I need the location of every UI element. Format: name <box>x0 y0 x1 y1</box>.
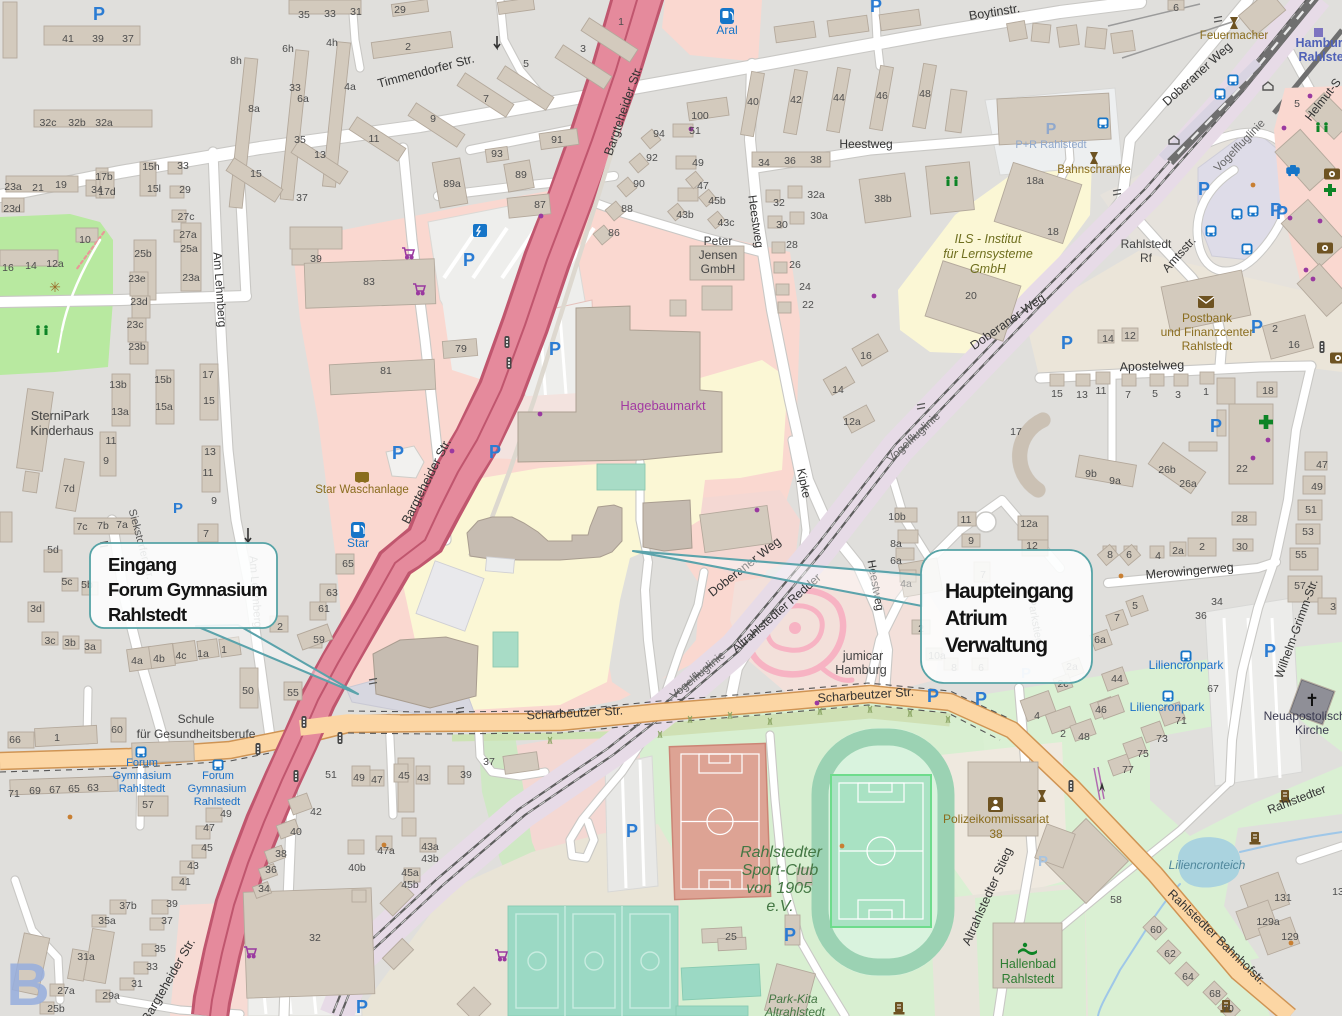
svg-text:Forum: Forum <box>126 757 158 769</box>
svg-text:Rahlstedt: Rahlstedt <box>119 783 165 795</box>
svg-text:Peter: Peter <box>704 234 733 248</box>
svg-text:38: 38 <box>989 827 1003 841</box>
svg-text:43a: 43a <box>421 841 439 853</box>
svg-text:34: 34 <box>1211 596 1223 608</box>
svg-text:19: 19 <box>55 179 67 191</box>
svg-text:37: 37 <box>296 192 308 204</box>
svg-text:2: 2 <box>1199 541 1205 553</box>
svg-text:83: 83 <box>363 276 375 288</box>
svg-text:42: 42 <box>790 94 802 106</box>
svg-text:2a: 2a <box>1172 545 1184 557</box>
svg-text:15h: 15h <box>142 161 160 173</box>
svg-text:Rahlstedt: Rahlstedt <box>194 796 240 808</box>
svg-text:61: 61 <box>318 603 330 615</box>
svg-text:Rf: Rf <box>1140 251 1153 265</box>
svg-text:64: 64 <box>1182 971 1194 983</box>
svg-text:33: 33 <box>177 160 189 172</box>
svg-text:26: 26 <box>789 259 801 271</box>
svg-text:23c: 23c <box>127 319 144 331</box>
svg-text:4h: 4h <box>326 37 338 49</box>
svg-text:131: 131 <box>1274 892 1292 904</box>
svg-text:Park-Kita: Park-Kita <box>768 992 818 1006</box>
svg-text:87: 87 <box>534 199 546 211</box>
svg-text:25: 25 <box>725 931 737 943</box>
svg-text:Polizeikommissariat: Polizeikommissariat <box>943 812 1050 826</box>
svg-text:25b: 25b <box>47 1003 65 1015</box>
svg-text:13a: 13a <box>111 406 129 418</box>
svg-text:7c: 7c <box>76 521 87 533</box>
svg-text:und Finanzcenter: und Finanzcenter <box>1161 325 1254 339</box>
svg-text:88: 88 <box>621 203 633 215</box>
svg-text:Kirche: Kirche <box>1295 723 1329 737</box>
svg-text:2: 2 <box>1060 728 1066 740</box>
svg-text:1: 1 <box>54 732 60 744</box>
svg-text:129: 129 <box>1281 931 1299 943</box>
svg-text:17: 17 <box>1010 426 1022 438</box>
svg-text:9b: 9b <box>1085 468 1097 480</box>
svg-text:129a: 129a <box>1256 916 1280 928</box>
svg-text:12: 12 <box>1124 330 1136 342</box>
svg-text:77: 77 <box>1122 764 1134 776</box>
svg-text:71: 71 <box>8 788 20 800</box>
svg-text:7b: 7b <box>97 520 109 532</box>
svg-text:66: 66 <box>9 734 21 746</box>
svg-text:6a: 6a <box>890 555 902 567</box>
svg-text:10: 10 <box>79 234 91 246</box>
svg-text:2: 2 <box>1272 323 1278 335</box>
svg-text:31a: 31a <box>77 951 95 963</box>
svg-text:3: 3 <box>1330 601 1336 613</box>
svg-text:6: 6 <box>1173 2 1179 14</box>
svg-text:Rahlstedt: Rahlstedt <box>1121 237 1172 251</box>
svg-text:67: 67 <box>1207 683 1219 695</box>
svg-text:3a: 3a <box>84 641 96 653</box>
svg-text:92: 92 <box>646 152 658 164</box>
svg-text:4c: 4c <box>175 650 186 662</box>
svg-text:60: 60 <box>1150 924 1162 936</box>
svg-text:89a: 89a <box>443 178 461 190</box>
svg-text:4a: 4a <box>131 655 143 667</box>
svg-text:36: 36 <box>784 155 796 167</box>
svg-text:47: 47 <box>697 180 709 192</box>
svg-text:Hamburg: Hamburg <box>835 663 886 677</box>
svg-text:33: 33 <box>324 8 336 20</box>
svg-text:28: 28 <box>786 239 798 251</box>
svg-text:7: 7 <box>203 528 209 540</box>
svg-text:32b: 32b <box>68 117 86 129</box>
svg-text:37: 37 <box>483 756 495 768</box>
svg-text:41: 41 <box>62 33 74 45</box>
svg-text:32a: 32a <box>95 117 113 129</box>
svg-text:✝: ✝ <box>1305 691 1319 710</box>
svg-text:Apostelweg: Apostelweg <box>1119 358 1184 374</box>
svg-text:Hagebaumarkt: Hagebaumarkt <box>620 398 706 413</box>
svg-text:P+R Rahlstedt: P+R Rahlstedt <box>1015 139 1086 151</box>
svg-text:6h: 6h <box>282 43 294 55</box>
svg-text:13: 13 <box>204 446 216 458</box>
svg-text:P: P <box>1061 333 1073 353</box>
svg-text:65: 65 <box>342 558 354 570</box>
svg-text:10b: 10b <box>888 511 906 523</box>
svg-text:47: 47 <box>1316 459 1328 471</box>
svg-text:93: 93 <box>491 148 503 160</box>
svg-text:35a: 35a <box>98 915 116 927</box>
svg-text:23e: 23e <box>128 273 146 285</box>
svg-text:39: 39 <box>92 33 104 45</box>
svg-text:27a: 27a <box>57 985 75 997</box>
svg-text:5c: 5c <box>61 576 72 588</box>
svg-text:4: 4 <box>1034 710 1040 722</box>
svg-text:36: 36 <box>1195 610 1207 622</box>
svg-text:✳: ✳ <box>49 279 61 295</box>
svg-text:69: 69 <box>29 785 41 797</box>
svg-text:94: 94 <box>653 128 665 140</box>
svg-text:Postbank: Postbank <box>1182 311 1233 325</box>
svg-text:53: 53 <box>1302 526 1314 538</box>
svg-text:38: 38 <box>810 154 822 166</box>
svg-text:Rahlstedter: Rahlstedter <box>740 844 822 861</box>
svg-text:32c: 32c <box>40 117 57 129</box>
svg-text:Gymnasium: Gymnasium <box>113 770 172 782</box>
svg-text:6a: 6a <box>297 93 309 105</box>
svg-text:1: 1 <box>618 16 624 28</box>
svg-text:91: 91 <box>551 134 563 146</box>
svg-text:13: 13 <box>314 149 326 161</box>
svg-text:11: 11 <box>961 514 972 526</box>
svg-text:79: 79 <box>455 343 467 355</box>
svg-text:e.V.: e.V. <box>766 898 793 915</box>
svg-text:26a: 26a <box>1179 478 1197 490</box>
svg-text:7: 7 <box>483 93 489 105</box>
svg-text:P: P <box>549 339 561 359</box>
svg-text:Jensen: Jensen <box>699 248 738 262</box>
svg-text:29: 29 <box>394 4 406 16</box>
svg-text:7: 7 <box>1125 389 1131 401</box>
svg-text:P: P <box>463 250 475 270</box>
svg-text:1: 1 <box>1203 386 1209 398</box>
svg-text:26b: 26b <box>1158 464 1176 476</box>
svg-text:Liliencronpark: Liliencronpark <box>1149 658 1225 672</box>
svg-text:14: 14 <box>832 384 844 396</box>
svg-text:11: 11 <box>106 435 117 447</box>
svg-text:23a: 23a <box>4 181 22 193</box>
svg-text:18a: 18a <box>1026 175 1044 187</box>
svg-text:für Lernsysteme: für Lernsysteme <box>943 247 1033 261</box>
svg-text:Eingang: Eingang <box>108 554 177 575</box>
svg-text:P: P <box>489 442 501 462</box>
svg-text:6: 6 <box>1126 549 1132 561</box>
svg-text:Verwaltung: Verwaltung <box>945 634 1047 657</box>
svg-text:18: 18 <box>1047 226 1059 238</box>
svg-text:45: 45 <box>398 770 410 782</box>
svg-text:4a: 4a <box>344 81 356 93</box>
svg-text:5d: 5d <box>47 544 59 556</box>
svg-text:49: 49 <box>1311 481 1323 493</box>
svg-text:15: 15 <box>1051 388 1063 400</box>
svg-text:Neuapostolische: Neuapostolische <box>1264 709 1342 723</box>
svg-text:16: 16 <box>1288 339 1300 351</box>
svg-text:27a: 27a <box>179 229 197 241</box>
svg-text:29: 29 <box>179 184 191 196</box>
svg-text:jumicar: jumicar <box>842 649 883 663</box>
svg-text:86: 86 <box>608 227 620 239</box>
svg-text:von 1905: von 1905 <box>746 880 812 897</box>
svg-text:Bahnschranke: Bahnschranke <box>1057 164 1131 176</box>
svg-text:2: 2 <box>405 41 411 53</box>
svg-text:P: P <box>1046 121 1057 138</box>
svg-text:22: 22 <box>802 299 814 311</box>
svg-text:23a: 23a <box>182 272 200 284</box>
svg-text:Sport-Club: Sport-Club <box>742 862 819 879</box>
svg-text:63: 63 <box>87 782 99 794</box>
svg-text:35: 35 <box>294 134 306 146</box>
svg-text:70: 70 <box>1222 1003 1234 1015</box>
svg-text:32a: 32a <box>807 189 825 201</box>
svg-text:3d: 3d <box>30 603 42 615</box>
svg-text:Altrahlstedt: Altrahlstedt <box>764 1005 826 1016</box>
svg-text:39: 39 <box>166 898 178 910</box>
svg-text:Liliencronpark: Liliencronpark <box>1130 700 1206 714</box>
svg-text:16: 16 <box>2 262 14 274</box>
svg-text:Liliencronteich: Liliencronteich <box>1169 858 1246 872</box>
svg-text:37: 37 <box>122 33 134 45</box>
svg-text:39: 39 <box>310 253 322 265</box>
svg-text:23d: 23d <box>3 203 21 215</box>
svg-text:39: 39 <box>460 769 472 781</box>
svg-text:5: 5 <box>1132 600 1138 612</box>
svg-text:8a: 8a <box>248 103 260 115</box>
svg-text:44: 44 <box>1111 673 1123 685</box>
svg-text:23d: 23d <box>130 296 148 308</box>
svg-text:15l: 15l <box>147 183 161 195</box>
svg-text:57: 57 <box>1294 580 1306 592</box>
svg-text:11: 11 <box>369 133 380 145</box>
svg-text:49: 49 <box>353 772 365 784</box>
svg-text:14: 14 <box>25 260 37 272</box>
svg-text:Hamburg-: Hamburg- <box>1295 36 1342 50</box>
svg-text:P: P <box>1210 416 1222 436</box>
svg-text:67: 67 <box>49 784 61 796</box>
svg-text:Rahlstedt: Rahlstedt <box>1299 50 1342 64</box>
svg-text:35: 35 <box>154 943 166 955</box>
svg-text:47: 47 <box>371 774 383 786</box>
svg-text:15a: 15a <box>155 401 173 413</box>
svg-text:28: 28 <box>1236 513 1248 525</box>
svg-text:38: 38 <box>275 848 287 860</box>
svg-text:45a: 45a <box>401 867 419 879</box>
svg-text:44: 44 <box>833 92 845 104</box>
svg-text:14: 14 <box>1102 333 1114 345</box>
svg-text:Gymnasium: Gymnasium <box>188 783 247 795</box>
svg-text:48: 48 <box>1078 731 1090 743</box>
svg-text:13b: 13b <box>109 379 127 391</box>
svg-text:33: 33 <box>146 961 158 973</box>
svg-text:P: P <box>1264 641 1276 661</box>
svg-text:17: 17 <box>202 369 214 381</box>
svg-text:Atrium: Atrium <box>945 607 1007 630</box>
svg-text:32: 32 <box>309 932 321 944</box>
svg-text:22: 22 <box>1236 463 1248 475</box>
svg-text:P: P <box>626 821 638 841</box>
svg-text:7d: 7d <box>63 483 75 495</box>
svg-text:12a: 12a <box>1020 518 1038 530</box>
svg-text:30: 30 <box>1236 541 1248 553</box>
svg-text:8h: 8h <box>230 55 242 67</box>
svg-text:34: 34 <box>258 883 270 895</box>
svg-text:Rahlstedt: Rahlstedt <box>108 604 187 625</box>
svg-text:63: 63 <box>326 587 338 599</box>
svg-text:Rahlstedt: Rahlstedt <box>1182 339 1233 353</box>
svg-text:9: 9 <box>103 455 109 467</box>
svg-text:P: P <box>1038 853 1048 870</box>
svg-text:B: B <box>6 951 49 1016</box>
svg-text:5: 5 <box>1294 98 1300 110</box>
svg-text:4b: 4b <box>153 653 165 665</box>
svg-text:Feuermacher: Feuermacher <box>1200 30 1269 42</box>
svg-text:38b: 38b <box>874 193 892 205</box>
svg-text:30: 30 <box>776 219 788 231</box>
svg-text:43: 43 <box>417 772 429 784</box>
svg-text:8a: 8a <box>890 538 902 550</box>
svg-text:15b: 15b <box>154 374 172 386</box>
svg-text:47: 47 <box>203 822 215 834</box>
svg-text:Star: Star <box>347 536 369 550</box>
svg-text:81: 81 <box>380 365 392 377</box>
svg-text:51: 51 <box>325 769 337 781</box>
svg-text:73: 73 <box>1156 733 1168 745</box>
svg-text:6a: 6a <box>1094 634 1106 646</box>
svg-text:17b: 17b <box>95 171 113 183</box>
svg-text:13: 13 <box>1332 886 1342 898</box>
svg-text:40: 40 <box>290 826 302 838</box>
svg-text:7: 7 <box>1114 612 1120 624</box>
svg-text:15: 15 <box>203 395 215 407</box>
svg-text:5: 5 <box>523 58 529 70</box>
svg-text:P: P <box>1276 203 1288 223</box>
svg-text:55: 55 <box>287 687 299 699</box>
svg-text:51: 51 <box>1305 504 1317 516</box>
svg-text:P: P <box>1198 179 1210 199</box>
svg-text:SterniPark: SterniPark <box>31 409 90 423</box>
svg-text:57: 57 <box>142 799 154 811</box>
svg-text:4: 4 <box>1155 550 1161 562</box>
svg-text:55: 55 <box>1295 549 1307 561</box>
svg-text:3: 3 <box>580 43 586 55</box>
svg-text:21: 21 <box>32 182 44 194</box>
svg-text:15: 15 <box>250 168 262 180</box>
svg-text:20: 20 <box>965 290 977 302</box>
svg-text:31: 31 <box>131 978 143 990</box>
svg-text:71: 71 <box>1175 715 1187 727</box>
svg-text:P: P <box>870 0 882 16</box>
svg-text:13: 13 <box>1076 389 1088 401</box>
svg-text:GmbH: GmbH <box>701 262 736 276</box>
svg-text:58: 58 <box>1110 894 1122 906</box>
svg-text:27c: 27c <box>178 211 195 223</box>
svg-text:68: 68 <box>1209 988 1221 1000</box>
svg-text:P: P <box>173 500 183 517</box>
svg-text:35: 35 <box>298 9 310 21</box>
svg-text:50: 50 <box>242 685 254 697</box>
svg-text:P: P <box>356 997 368 1016</box>
svg-text:Forum: Forum <box>202 770 234 782</box>
svg-text:89: 89 <box>515 169 527 181</box>
svg-text:P: P <box>392 443 404 463</box>
svg-text:Aral: Aral <box>716 23 737 37</box>
svg-text:25b: 25b <box>134 248 152 260</box>
svg-text:11: 11 <box>203 467 214 479</box>
svg-text:37b: 37b <box>119 900 137 912</box>
svg-text:25a: 25a <box>180 243 198 255</box>
svg-text:P: P <box>784 925 796 945</box>
svg-text:18: 18 <box>1262 385 1274 397</box>
svg-text:37: 37 <box>161 915 173 927</box>
svg-text:P: P <box>93 4 105 24</box>
svg-text:40: 40 <box>747 96 759 108</box>
svg-text:17d: 17d <box>98 186 116 198</box>
svg-text:41: 41 <box>179 876 191 888</box>
svg-text:Heestweg: Heestweg <box>839 137 892 151</box>
svg-text:46: 46 <box>1095 704 1107 716</box>
svg-text:Hallenbad: Hallenbad <box>1000 957 1056 971</box>
svg-text:62: 62 <box>1164 948 1176 960</box>
svg-text:1: 1 <box>221 644 227 656</box>
svg-text:60: 60 <box>111 724 123 736</box>
svg-text:46: 46 <box>876 90 888 102</box>
svg-text:23b: 23b <box>128 341 146 353</box>
svg-text:49: 49 <box>692 157 704 169</box>
svg-text:40b: 40b <box>348 862 366 874</box>
svg-text:36: 36 <box>265 864 277 876</box>
svg-text:90: 90 <box>633 178 645 190</box>
svg-text:Rahlstedt: Rahlstedt <box>1002 972 1055 986</box>
svg-text:P: P <box>927 686 939 706</box>
svg-text:11: 11 <box>1096 385 1107 397</box>
svg-text:Schule: Schule <box>178 712 215 726</box>
svg-text:Haupteingang: Haupteingang <box>945 580 1073 603</box>
svg-text:1a: 1a <box>197 648 209 660</box>
svg-text:24: 24 <box>799 281 811 293</box>
svg-text:43b: 43b <box>676 209 694 221</box>
svg-text:3c: 3c <box>44 635 55 647</box>
svg-text:65: 65 <box>68 783 80 795</box>
svg-text:9: 9 <box>211 495 217 507</box>
svg-text:45b: 45b <box>401 879 419 891</box>
svg-text:Star Waschanlage: Star Waschanlage <box>315 484 409 496</box>
svg-text:32: 32 <box>773 197 785 209</box>
svg-text:47a: 47a <box>377 845 395 857</box>
svg-text:16: 16 <box>860 350 872 362</box>
svg-text:34: 34 <box>758 157 770 169</box>
svg-text:48: 48 <box>919 88 931 100</box>
svg-text:ILS - Institut: ILS - Institut <box>955 232 1022 246</box>
svg-text:8: 8 <box>1107 549 1113 561</box>
svg-text:42: 42 <box>310 806 322 818</box>
svg-text:9: 9 <box>968 535 974 547</box>
svg-text:29a: 29a <box>102 990 120 1002</box>
svg-text:Forum Gymnasium: Forum Gymnasium <box>108 579 267 600</box>
svg-text:5: 5 <box>1152 388 1158 400</box>
svg-text:7a: 7a <box>116 519 128 531</box>
svg-text:59: 59 <box>313 634 325 646</box>
svg-text:45b: 45b <box>708 195 726 207</box>
svg-text:2: 2 <box>277 621 283 633</box>
svg-text:43: 43 <box>187 860 199 872</box>
svg-text:9: 9 <box>430 113 436 125</box>
svg-text:12a: 12a <box>46 258 64 270</box>
svg-text:43c: 43c <box>718 217 735 229</box>
svg-text:3b: 3b <box>64 637 76 649</box>
